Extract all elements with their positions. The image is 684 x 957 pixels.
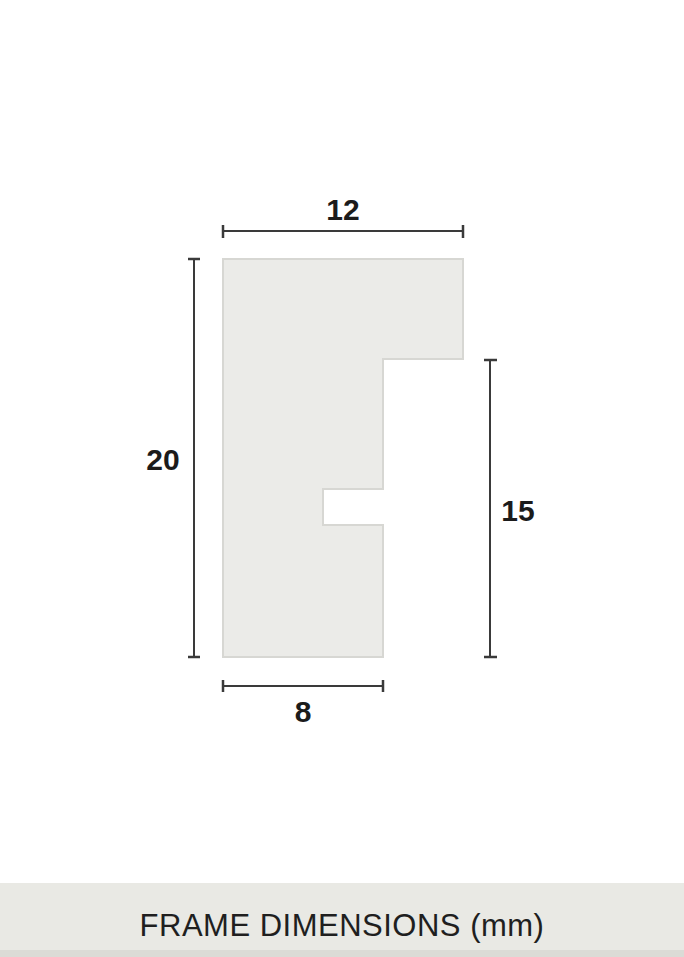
footer-title: FRAME DIMENSIONS (mm) [140, 908, 545, 944]
frame-profile-shape [223, 259, 463, 657]
dimension-label-overall-height: 20 [146, 443, 179, 476]
dimension-overall-height: 20 [146, 259, 200, 657]
profile-diagram-svg: 12 20 15 8 [0, 0, 684, 957]
dimension-top-width: 12 [223, 193, 463, 238]
dimension-bottom-width: 8 [223, 680, 383, 728]
dimension-label-top-width: 12 [326, 193, 359, 226]
footer-bar: FRAME DIMENSIONS (mm) [0, 883, 684, 957]
footer-bottom-edge [0, 950, 684, 957]
dimension-label-rabbet-height: 15 [501, 494, 534, 527]
dimension-label-bottom-width: 8 [295, 695, 312, 728]
frame-dimension-diagram: 12 20 15 8 FRAME DIMENSIONS (mm) [0, 0, 684, 957]
dimension-rabbet-height: 15 [484, 360, 535, 657]
